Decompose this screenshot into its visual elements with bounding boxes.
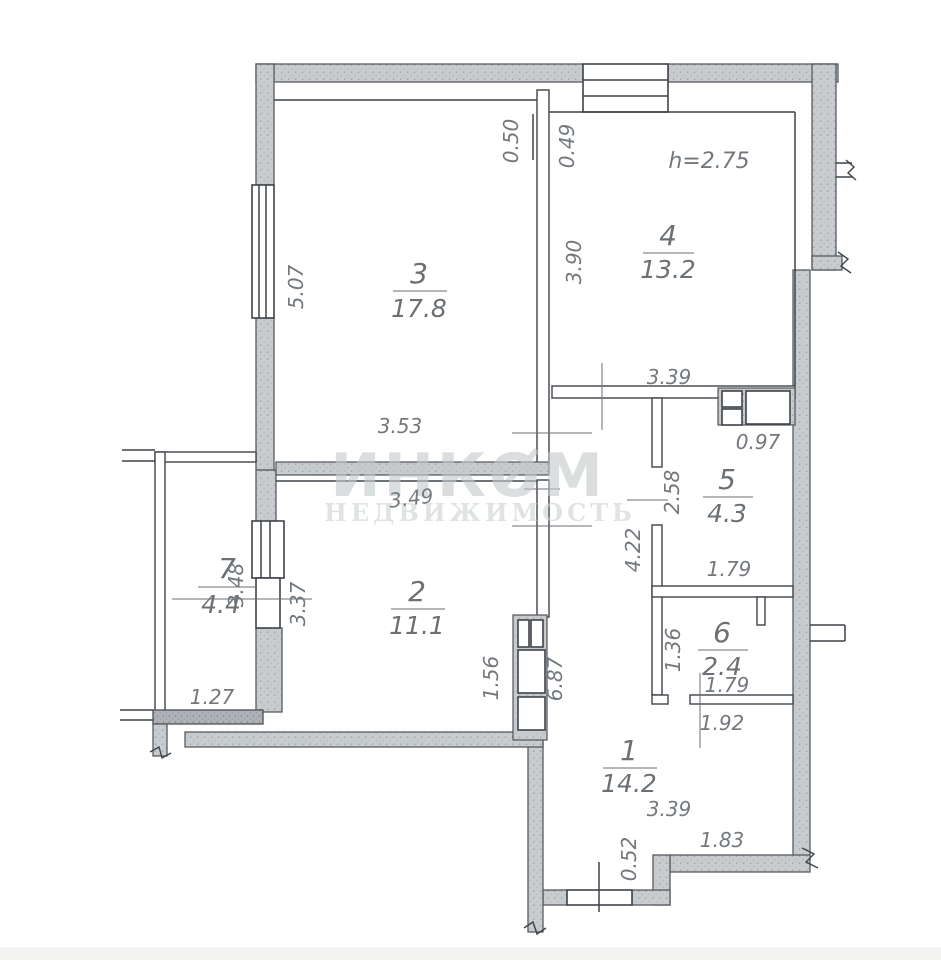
room1-number: 1 <box>620 734 638 767</box>
room2-number: 2 <box>408 575 426 608</box>
dim-room3-height: 5.07 <box>284 264 308 309</box>
dim-room2-door-width: 1.56 <box>479 656 503 701</box>
wall-room5-room6 <box>652 586 793 597</box>
window-top <box>583 64 668 112</box>
neighbor-stub-bottom <box>120 710 153 720</box>
room4-number: 4 <box>659 219 677 252</box>
dim-hall-full-height: 6.87 <box>543 656 567 701</box>
balcony-door-opening <box>256 578 280 628</box>
dim-offset-right: 0.49 <box>555 124 579 169</box>
dim-corridor-height: 4.22 <box>621 528 645 573</box>
neighbor-stub-top <box>122 450 155 461</box>
window-room3-left <box>252 185 274 318</box>
room3-area: 17.8 <box>391 294 447 323</box>
wall-room6-hall-left <box>652 695 668 704</box>
vent-shafts <box>718 388 795 425</box>
partitions <box>276 90 795 704</box>
room-label-6: 6 2.4 <box>698 616 748 681</box>
room1-area: 14.2 <box>601 769 657 798</box>
dim-hall-lower-width: 1.92 <box>700 711 745 735</box>
room5-number: 5 <box>718 463 736 496</box>
dim-balcony-height: 3.48 <box>224 563 248 608</box>
dim-room6-width: 1.79 <box>705 673 750 697</box>
dim-room4-width: 3.39 <box>647 365 692 389</box>
dim-shaft-width: 0.97 <box>736 430 781 454</box>
floor-plan-svg: ИНКОМ НЕДВИЖИМОСТЬ 3 17.8 4 13.2 2 11.1 … <box>0 0 941 960</box>
dim-room5-width: 1.79 <box>707 557 752 581</box>
room3-number: 3 <box>410 257 428 290</box>
dim-room3-width: 3.53 <box>378 414 423 438</box>
dim-room6-height: 1.36 <box>661 628 685 673</box>
window-room2-balcony <box>252 521 284 578</box>
room6-stub <box>757 597 765 625</box>
room-label-5: 5 4.3 <box>703 463 753 528</box>
ceiling-height: h=2.75 <box>668 149 749 174</box>
room-label-3: 3 17.8 <box>391 257 447 323</box>
room5-area: 4.3 <box>707 499 747 528</box>
stub-right-lower <box>810 625 845 641</box>
dim-balcony-width: 1.27 <box>190 685 235 709</box>
watermark-subtitle: НЕДВИЖИМОСТЬ <box>324 498 636 527</box>
floor-plan-page: ИНКОМ НЕДВИЖИМОСТЬ 3 17.8 4 13.2 2 11.1 … <box>0 0 941 960</box>
room2-door-column <box>513 615 547 740</box>
inner-lines <box>274 100 795 386</box>
room6-number: 6 <box>713 616 731 649</box>
room-label-4: 4 13.2 <box>640 219 696 284</box>
dim-room2-height: 3.37 <box>286 581 310 626</box>
wall-room3-room4 <box>537 90 549 463</box>
dim-offset-left: 0.50 <box>499 119 523 164</box>
dim-room1-width: 3.39 <box>647 797 692 821</box>
dim-bottom-step: 0.52 <box>617 837 641 882</box>
dim-room5-height: 2.58 <box>660 470 684 515</box>
scan-edge <box>0 947 941 960</box>
room2-area: 11.1 <box>389 611 445 640</box>
room-label-1: 1 14.2 <box>601 734 657 798</box>
dim-bottom-right-width: 1.83 <box>700 828 745 852</box>
dim-room4-height: 3.90 <box>562 240 586 285</box>
watermark: ИНКОМ НЕДВИЖИМОСТЬ <box>324 441 636 527</box>
room-label-2: 2 11.1 <box>389 575 445 640</box>
room4-area: 13.2 <box>640 255 696 284</box>
wall-room5-hall-upper <box>652 398 662 467</box>
